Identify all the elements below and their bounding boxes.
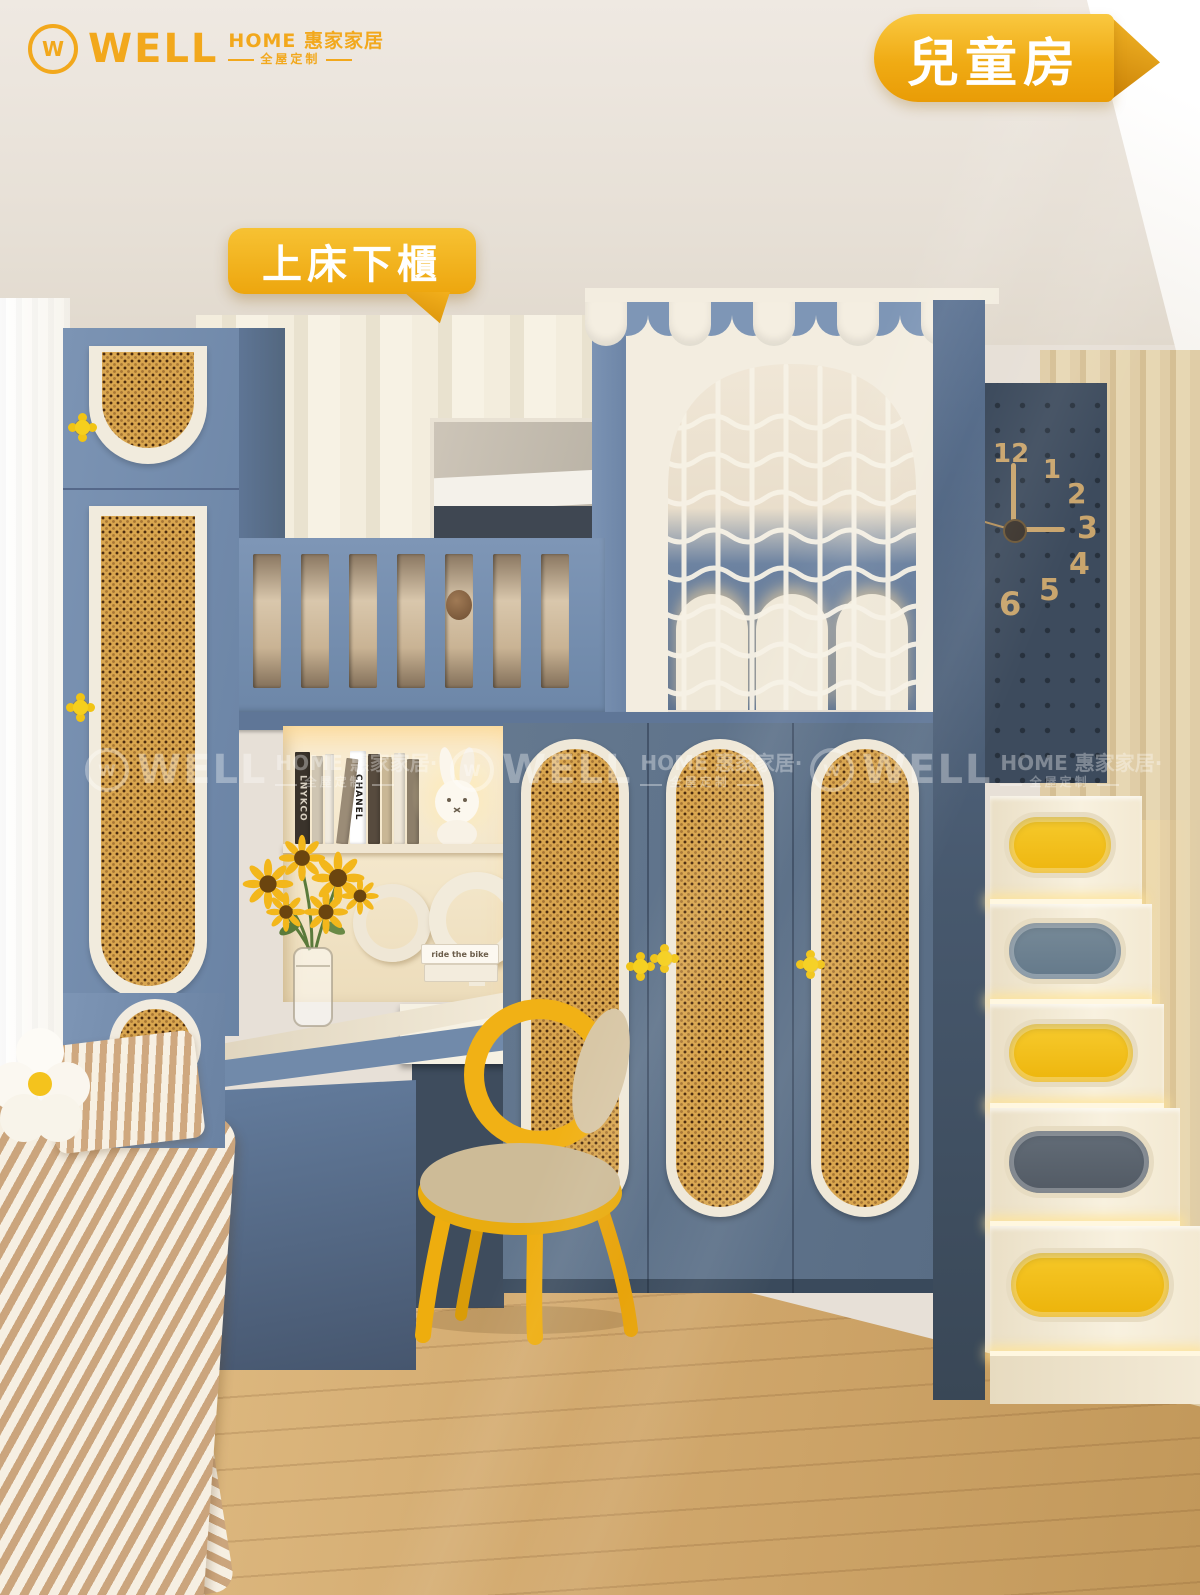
left-wardrobe-door-divider (63, 488, 239, 490)
railing-slot (301, 554, 329, 688)
watermark-name: WELL (502, 750, 632, 790)
feature-badge: 上床下櫃 (228, 228, 476, 294)
railing-slot (493, 554, 521, 688)
children-room-render: 12 1 2 3 4 5 6 (0, 0, 1200, 1595)
railing-slot (253, 554, 281, 688)
striped-duvet (0, 1100, 237, 1595)
watermark-name: WELL (862, 750, 992, 790)
loft-railing (205, 538, 605, 714)
scallop-white (669, 302, 711, 346)
watermark-tagline: 全屋定制 (1000, 775, 1162, 789)
stair-drawer-yellow[interactable] (1006, 1248, 1174, 1322)
stair-step-5 (990, 1226, 1200, 1356)
watermark-tagline: 全屋定制 (275, 775, 437, 789)
feature-badge-label: 上床下櫃 (262, 232, 442, 290)
flower-knob[interactable] (657, 951, 672, 966)
wardrobe-right-side (933, 300, 985, 1400)
watermark-name: WELL (137, 750, 267, 790)
rattan-half-round-panel (102, 352, 194, 448)
watermark-logo-icon: W (810, 748, 854, 792)
stair-step-2 (990, 904, 1152, 1004)
rattan-pill-panel (676, 749, 764, 1207)
clock-number-1: 1 (1043, 455, 1061, 485)
railing-slot (541, 554, 569, 688)
stair-step-3 (990, 1004, 1164, 1108)
brand-watermark: W WELL HOME 惠家家居· 全屋定制 (450, 748, 802, 792)
railing-slot (397, 554, 425, 688)
watermark-tagline: 全屋定制 (640, 775, 802, 789)
brand-logo: W WELL HOME 惠家家居 全屋定制 (28, 24, 384, 74)
flower-knob[interactable] (73, 700, 88, 715)
teddy-bear (446, 590, 472, 620)
brand-name: WELL (88, 29, 218, 69)
brand-home-line: HOME 惠家家居 (228, 31, 384, 53)
rattan-pill-panel (821, 749, 909, 1207)
stair-base (990, 1356, 1200, 1404)
brand-watermark: W WELL HOME 惠家家居· 全屋定制 (85, 748, 437, 792)
scallop-white (585, 302, 627, 346)
flower-pillow (0, 1028, 110, 1148)
clock-number-6: 6 (999, 585, 1021, 623)
castle-face-panel (626, 306, 958, 712)
stair-step-1 (990, 796, 1142, 904)
watermark-home-line: HOME 惠家家居· (640, 751, 802, 775)
pegboard-panel: 12 1 2 3 4 5 6 (973, 383, 1107, 783)
stair-step-4 (990, 1108, 1180, 1226)
yellow-chair[interactable] (385, 975, 670, 1350)
watermark-home-line: HOME 惠家家居· (275, 751, 437, 775)
stair-drawer-grey[interactable] (1004, 1126, 1154, 1198)
flower-pillow-center (28, 1072, 52, 1096)
watermark-logo-icon: W (85, 748, 129, 792)
sunflower-bouquet (238, 828, 388, 1043)
scallop-white (837, 302, 879, 346)
left-wardrobe (63, 328, 239, 1036)
book-title: ride the bike (431, 950, 488, 959)
railing-slot (445, 554, 473, 688)
clock-center-cap (1003, 519, 1027, 543)
wardrobe-door-panel[interactable] (666, 739, 774, 1217)
stair-drawer-yellow[interactable] (1004, 1019, 1138, 1087)
clock-number-2: 2 (1067, 477, 1086, 510)
door-seam (792, 723, 794, 1293)
flower-knob[interactable] (803, 957, 818, 972)
brand-watermark: W WELL HOME 惠家家居· 全屋定制 (810, 748, 1162, 792)
wall-mirror (430, 418, 608, 556)
scallop-white (753, 302, 795, 346)
railing-slot (349, 554, 377, 688)
flower-pillow-petal (34, 1094, 82, 1142)
flower-knob[interactable] (75, 420, 90, 435)
room-ribbon: 兒童房 (874, 14, 1114, 102)
flower-knob[interactable] (633, 959, 648, 974)
stair-drawer-yellow[interactable] (1004, 812, 1116, 878)
watermark-logo-icon: W (450, 748, 494, 792)
wardrobe-door-panel[interactable] (811, 739, 919, 1217)
stair-drawer-blue[interactable] (1004, 918, 1126, 984)
brand-logo-icon: W (28, 24, 78, 74)
book-stack-top: ride the bike (421, 944, 499, 964)
clock-number-4: 4 (1069, 547, 1090, 582)
watermark-home-line: HOME 惠家家居· (1000, 751, 1162, 775)
brand-tagline: 全屋定制 (228, 53, 384, 67)
left-wardrobe-top-door-panel (89, 346, 207, 464)
room-ribbon-label: 兒童房 (907, 21, 1081, 96)
clock-number-3: 3 (1077, 511, 1098, 546)
clock-number-5: 5 (1039, 573, 1060, 608)
